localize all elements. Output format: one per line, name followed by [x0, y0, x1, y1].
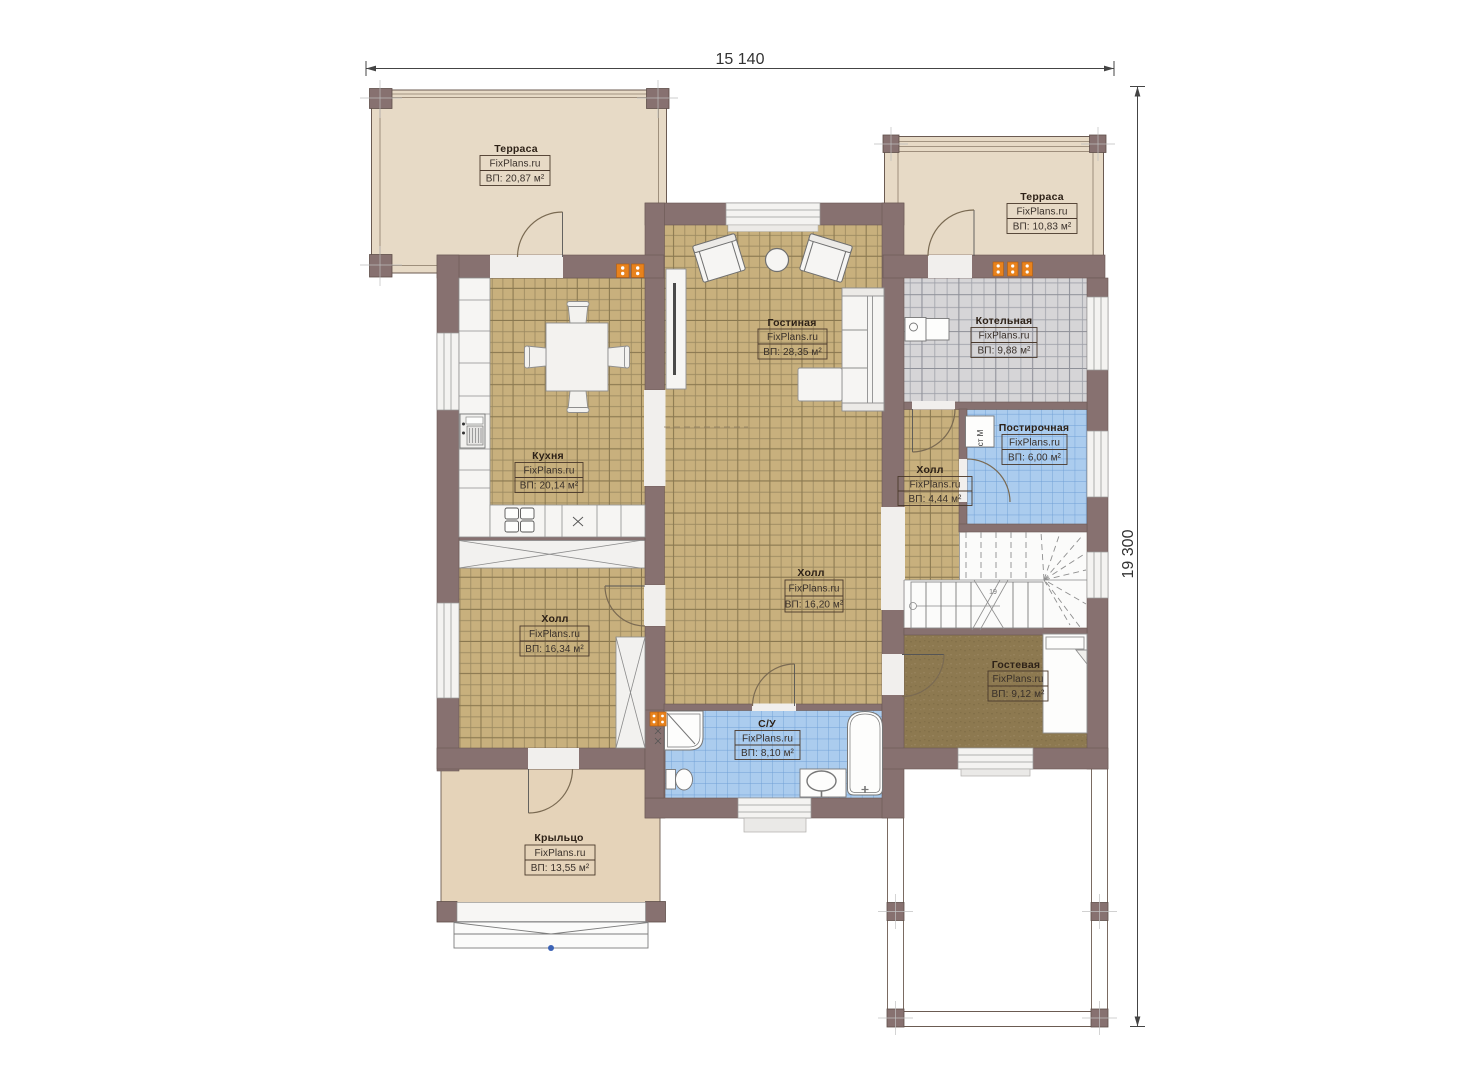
- svg-text:FixPlans.ru: FixPlans.ru: [1016, 207, 1067, 218]
- svg-text:FixPlans.ru: FixPlans.ru: [1009, 438, 1060, 449]
- svg-text:FixPlans.ru: FixPlans.ru: [534, 848, 585, 859]
- svg-text:Крыльцо: Крыльцо: [534, 832, 583, 844]
- svg-text:ст М: ст М: [976, 429, 985, 446]
- svg-text:ВП: 10,83 м²: ВП: 10,83 м²: [1013, 222, 1072, 233]
- svg-text:ВП: 20,87 м²: ВП: 20,87 м²: [486, 174, 545, 185]
- svg-text:FixPlans.ru: FixPlans.ru: [489, 159, 540, 170]
- svg-text:Гостиная: Гостиная: [767, 317, 816, 329]
- svg-text:Холл: Холл: [541, 613, 568, 625]
- svg-text:15 140: 15 140: [716, 51, 765, 68]
- svg-text:Терраса: Терраса: [1020, 191, 1064, 203]
- svg-text:19 300: 19 300: [1120, 529, 1137, 578]
- svg-text:FixPlans.ru: FixPlans.ru: [909, 480, 960, 491]
- svg-text:ВП: 4,44 м²: ВП: 4,44 м²: [909, 494, 963, 505]
- svg-text:ВП: 28,35 м²: ВП: 28,35 м²: [763, 347, 822, 358]
- svg-text:FixPlans.ru: FixPlans.ru: [742, 734, 793, 745]
- svg-text:ВП: 16,20 м²: ВП: 16,20 м²: [785, 600, 844, 611]
- svg-text:ВП: 6,00 м²: ВП: 6,00 м²: [1008, 453, 1062, 464]
- svg-text:FixPlans.ru: FixPlans.ru: [529, 629, 580, 640]
- svg-text:FixPlans.ru: FixPlans.ru: [523, 466, 574, 477]
- svg-text:ВП: 20,14 м²: ВП: 20,14 м²: [520, 481, 579, 492]
- svg-text:Холл: Холл: [797, 567, 824, 579]
- svg-text:Гостевая: Гостевая: [992, 659, 1040, 671]
- svg-text:ВП: 9,88 м²: ВП: 9,88 м²: [978, 346, 1032, 357]
- svg-text:ВП: 8,10 м²: ВП: 8,10 м²: [741, 748, 795, 759]
- svg-text:ВП: 16,34 м²: ВП: 16,34 м²: [525, 644, 584, 655]
- svg-text:ВП: 9,12 м²: ВП: 9,12 м²: [992, 689, 1046, 700]
- svg-text:Котельная: Котельная: [976, 315, 1033, 327]
- svg-text:19: 19: [989, 589, 997, 596]
- svg-text:Кухня: Кухня: [532, 450, 564, 462]
- svg-text:ВП: 13,55 м²: ВП: 13,55 м²: [531, 863, 590, 874]
- svg-text:Постирочная: Постирочная: [999, 422, 1069, 434]
- svg-text:Холл: Холл: [916, 464, 943, 476]
- svg-text:FixPlans.ru: FixPlans.ru: [788, 584, 839, 595]
- svg-text:С/У: С/У: [758, 718, 776, 730]
- svg-text:FixPlans.ru: FixPlans.ru: [767, 332, 818, 343]
- svg-text:FixPlans.ru: FixPlans.ru: [978, 331, 1029, 342]
- svg-text:Терраса: Терраса: [494, 143, 538, 155]
- svg-text:FixPlans.ru: FixPlans.ru: [992, 674, 1043, 685]
